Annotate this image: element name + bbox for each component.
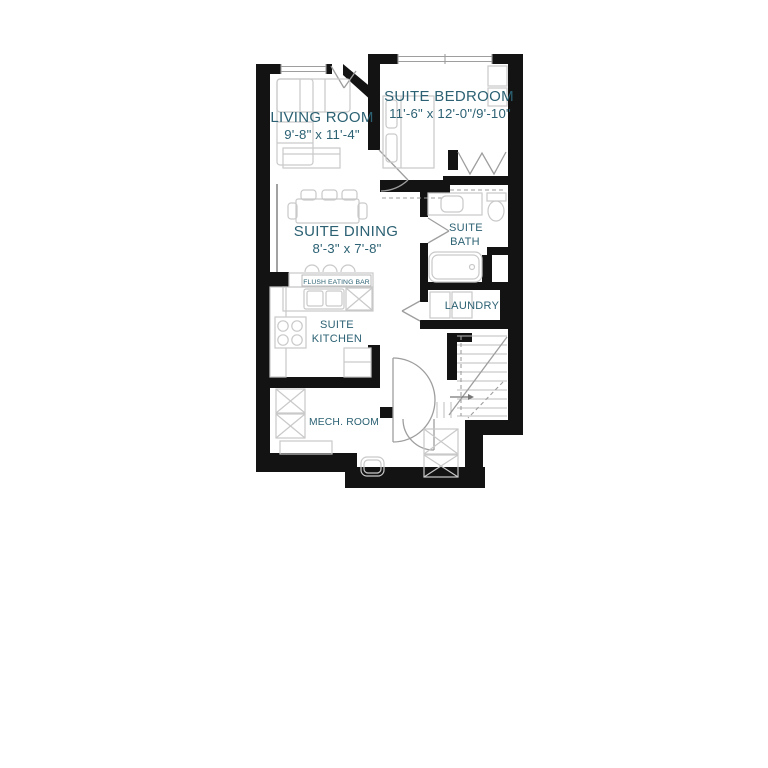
bar-stool — [305, 265, 319, 272]
suite-bedroom-label: SUITE BEDROOM — [384, 88, 514, 105]
laundry-label: LAUNDRY — [445, 300, 500, 312]
wall-mech-top — [380, 407, 393, 418]
mech-room-door — [403, 419, 434, 450]
suite-kitchen-label-line2: KITCHEN — [312, 333, 362, 345]
bed-pillow — [386, 134, 397, 162]
base-cabinet-x — [346, 288, 372, 310]
wall-bath-top — [420, 185, 450, 193]
kitchen-sink-basin — [326, 291, 342, 306]
bath-door — [428, 218, 449, 243]
equipment-x-box — [276, 414, 305, 438]
wall-living-top-mid — [326, 64, 332, 74]
suite-dining-label: SUITE DINING — [294, 223, 398, 240]
living-window — [281, 64, 326, 74]
floor-plan-drawing: LIVING ROOM 9'-8" x 11'-4" SUITE BEDROOM… — [0, 0, 768, 768]
wall-closet-stub — [448, 150, 458, 170]
living-room-label: LIVING ROOM — [270, 109, 373, 126]
wall-bedroom-top-left — [368, 54, 398, 64]
wall-tub-alcove — [482, 255, 492, 284]
equipment-shelf — [280, 441, 332, 454]
mech-room-label: MECH. ROOM — [309, 417, 379, 428]
wall-left-outer — [256, 64, 270, 456]
bar-stool — [341, 265, 355, 272]
living-room-dims: 9'-8" x 11'-4" — [284, 127, 360, 142]
wall-stair-stub-v — [447, 342, 457, 380]
dining-furniture — [288, 190, 367, 223]
suite-dining-dims: 8'-3" x 7'-8" — [312, 241, 381, 256]
wall-laundry-chase — [500, 282, 523, 329]
wall-kitchen-bottom — [266, 377, 380, 388]
kitchen-sink-basin — [307, 291, 323, 306]
suite-kitchen-label-line1: SUITE — [320, 319, 354, 331]
equipment-x-box — [276, 389, 305, 413]
wall-laundry-bottom — [420, 320, 508, 329]
wall-bath-laundry-divider — [420, 282, 508, 290]
suite-bedroom-dims: 11'-6" x 12'-0"/9'-10" — [389, 106, 511, 121]
floor-plan-page: LIVING ROOM 9'-8" x 11'-4" SUITE BEDROOM… — [0, 0, 768, 768]
stair-break-line — [449, 337, 507, 415]
dining-table — [296, 199, 359, 223]
equipment-x-box — [424, 429, 458, 454]
wall-bedroom-left — [368, 64, 380, 150]
bathtub — [429, 252, 482, 282]
eating-bar-label: FLUSH EATING BAR — [303, 279, 369, 286]
refrigerator — [344, 348, 371, 377]
vanity-sink — [441, 196, 463, 212]
wall-closet-bottom — [443, 176, 508, 185]
laundry-door — [402, 301, 420, 321]
dresser — [488, 66, 507, 86]
range-stove — [275, 317, 306, 348]
suite-bath-label-line2: BATH — [450, 236, 480, 248]
bar-stool — [323, 265, 337, 272]
wall-stair-stub-h — [447, 333, 472, 342]
wall-tub-jog — [487, 247, 508, 255]
stair-headroom-dashed — [468, 382, 503, 418]
wall-laundry-left — [420, 290, 428, 302]
wall-bottom-step — [256, 453, 485, 488]
suite-bath-label-line1: SUITE — [449, 222, 483, 234]
toilet — [487, 193, 506, 221]
wall-bottom-right-v — [465, 420, 483, 488]
bedroom-window — [398, 54, 492, 64]
bedroom-closet-bifold-doors — [458, 152, 506, 174]
wall-eating-bar-stub — [270, 272, 289, 287]
